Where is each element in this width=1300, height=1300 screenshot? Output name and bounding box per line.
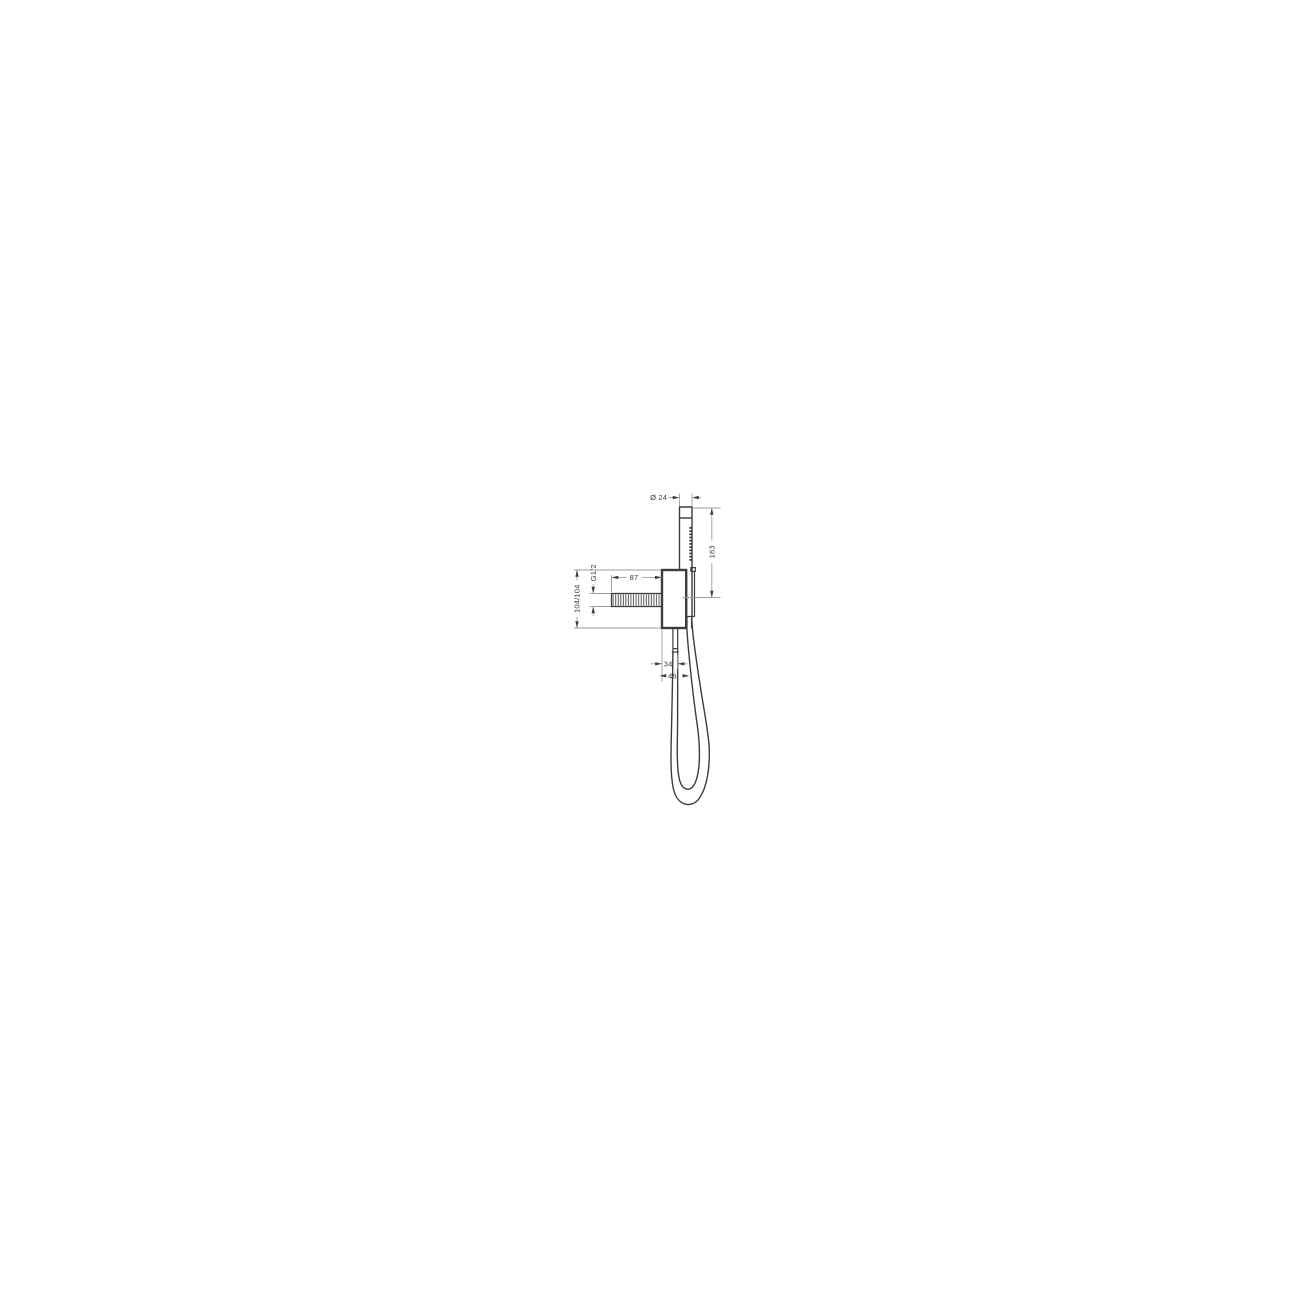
dimension-reach: 87 xyxy=(612,573,662,592)
reach-dimension-label: 87 xyxy=(630,573,639,582)
technical-dimension-drawing: Ø 24 163 87 G1/ xyxy=(0,0,1300,1300)
offset-outer-dimension-label: 46 xyxy=(668,671,677,680)
drawing-canvas: Ø 24 163 87 G1/ xyxy=(0,0,1300,1300)
wall-supply-pipe xyxy=(612,594,663,607)
heights-dimension-label: 104/104 xyxy=(573,585,582,614)
offset-inner-dimension-label: 34 xyxy=(664,660,673,669)
dimension-thread: G1/2 xyxy=(589,564,611,616)
thread-dimension-label: G1/2 xyxy=(589,564,598,581)
dimension-length: 163 xyxy=(683,508,721,598)
length-dimension-label: 163 xyxy=(707,545,716,558)
diameter-dimension-label: Ø 24 xyxy=(650,493,667,502)
hose-outlet-connector xyxy=(672,629,679,653)
pipe-thread-hatch xyxy=(612,594,661,605)
dimension-offset-outer: 46 xyxy=(660,671,690,680)
dimension-diameter: Ø 24 xyxy=(650,493,701,506)
shower-hose xyxy=(671,617,709,805)
holder-bracket xyxy=(662,570,686,628)
